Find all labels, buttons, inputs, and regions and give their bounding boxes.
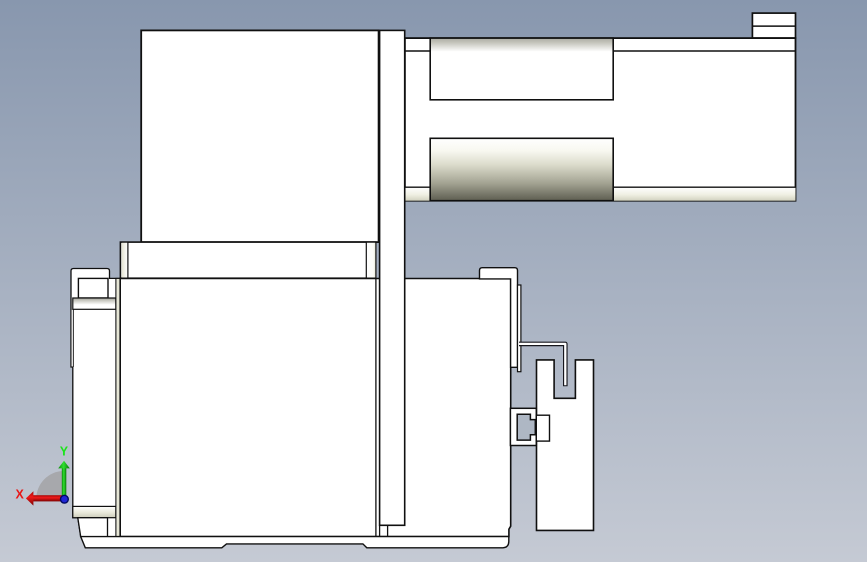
svg-text:X: X	[16, 488, 25, 502]
svg-text:Y: Y	[60, 445, 69, 459]
